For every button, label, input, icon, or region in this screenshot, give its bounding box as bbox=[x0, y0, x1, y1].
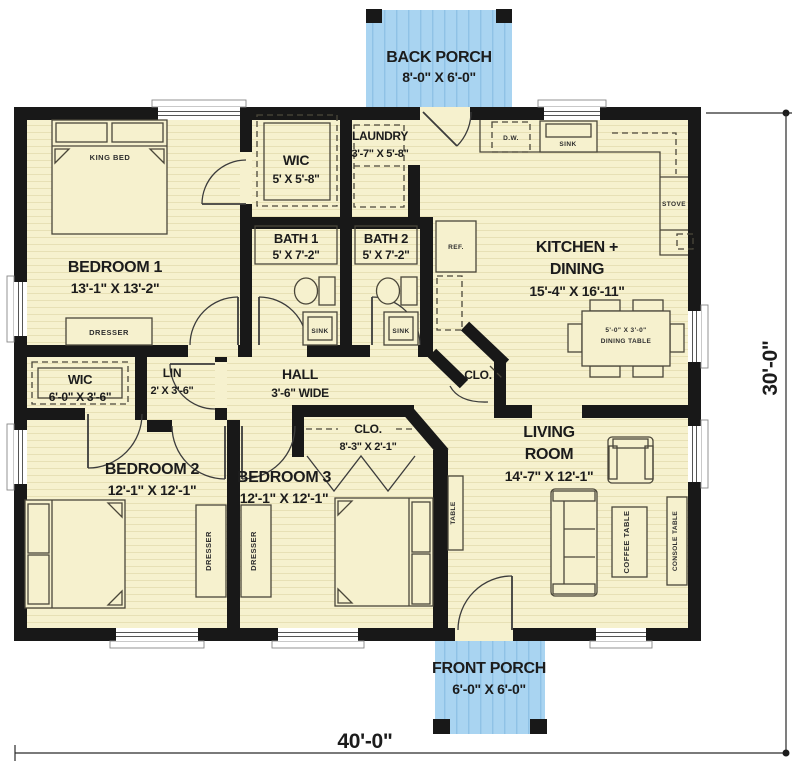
floor-plan-drawing: BACK PORCH 8'-0" X 6'-0" FRONT PORCH 6'-… bbox=[0, 0, 800, 764]
dining-chair bbox=[568, 324, 582, 352]
kitchen-name-1: KITCHEN + bbox=[536, 239, 618, 256]
dining-chair bbox=[590, 300, 620, 311]
hall-closet-name: CLO. bbox=[464, 368, 491, 382]
front-porch-dims: 6'-0" X 6'-0" bbox=[452, 681, 526, 697]
back-porch-dims: 8'-0" X 6'-0" bbox=[402, 69, 476, 85]
porch-post bbox=[433, 719, 450, 734]
kitchen-sink-label: SINK bbox=[559, 141, 576, 148]
laundry-name: LAUNDRY bbox=[352, 129, 408, 143]
toilet-bowl bbox=[295, 278, 318, 304]
dining-chair bbox=[670, 324, 684, 352]
front-porch-label: FRONT PORCH bbox=[432, 660, 546, 677]
back-porch-label: BACK PORCH bbox=[386, 49, 491, 66]
living-name-2: ROOM bbox=[525, 446, 574, 463]
overall-height-dim: 30'-0" bbox=[759, 340, 782, 395]
dining-set: 5'-0" X 3'-0" DINING TABLE bbox=[568, 300, 684, 377]
living-name-1: LIVING bbox=[523, 424, 575, 441]
bedroom2-dims: 12'-1" X 12'-1" bbox=[108, 482, 197, 498]
sofa-table-label: TABLE bbox=[450, 501, 457, 524]
toilet-bowl bbox=[377, 278, 400, 304]
dining-table-label: DINING TABLE bbox=[601, 338, 652, 345]
lin-dims: 2' X 3'-6" bbox=[151, 385, 194, 397]
overall-width-dim: 40'-0" bbox=[337, 730, 392, 753]
dimension-dot bbox=[783, 750, 790, 757]
stove-label: STOVE bbox=[662, 201, 686, 208]
window-bedroom1-left bbox=[7, 276, 27, 342]
window-bedroom3-bottom bbox=[272, 628, 364, 648]
window-living-right bbox=[688, 420, 708, 488]
bath1-sink-label: SINK bbox=[311, 328, 328, 335]
king-bed bbox=[52, 120, 167, 234]
dishwasher-label: D.W. bbox=[503, 135, 519, 142]
dining-chair bbox=[633, 300, 663, 311]
bed bbox=[25, 500, 125, 608]
dresser3-label: DRESSER bbox=[249, 531, 258, 571]
toilet-tank bbox=[319, 277, 335, 305]
wic1-dims: 5' X 5'-8" bbox=[272, 172, 319, 186]
dining-chair bbox=[590, 366, 620, 377]
console-table-label: CONSOLE TABLE bbox=[672, 511, 679, 572]
hall-name: HALL bbox=[282, 366, 319, 382]
dresser1-label: DRESSER bbox=[89, 328, 129, 337]
bath1-name: BATH 1 bbox=[274, 231, 318, 246]
dresser2-label: DRESSER bbox=[204, 531, 213, 571]
bath2-name: BATH 2 bbox=[364, 231, 408, 246]
wic1-name: WIC bbox=[283, 152, 310, 168]
dining-table-dims: 5'-0" X 3'-0" bbox=[605, 327, 646, 334]
back-porch: BACK PORCH 8'-0" X 6'-0" bbox=[366, 9, 512, 107]
bed3-closet-dims: 8'-3" X 2'-1" bbox=[339, 441, 396, 453]
sofa bbox=[551, 489, 597, 596]
hall-dims: 3'-6" WIDE bbox=[271, 386, 329, 400]
porch-post bbox=[366, 9, 382, 23]
wic2-name: WIC bbox=[68, 372, 93, 387]
window-dining-right bbox=[688, 305, 708, 368]
kitchen-name-2: DINING bbox=[550, 261, 604, 278]
bed3-closet-name: CLO. bbox=[354, 422, 381, 436]
coffee-table-label: COFFEE TABLE bbox=[622, 511, 631, 574]
window-living-bottom bbox=[590, 628, 652, 648]
refrigerator-label: REF. bbox=[448, 244, 464, 251]
porch-post bbox=[496, 9, 512, 23]
toilet-tank bbox=[401, 277, 417, 305]
wic2-dims: 6'-0" X 3'-6" bbox=[49, 390, 112, 404]
king-bed-label: KING BED bbox=[90, 153, 131, 162]
window-bedroom2-left bbox=[7, 424, 27, 490]
bedroom1-dims: 13'-1" X 13'-2" bbox=[71, 280, 160, 296]
front-porch: FRONT PORCH 6'-0" X 6'-0" bbox=[432, 641, 547, 734]
kitchen-dims: 15'-4" X 16'-11" bbox=[529, 283, 624, 299]
bedroom3-dims: 12'-1" X 12'-1" bbox=[240, 490, 329, 506]
bedroom2-name: BEDROOM 2 bbox=[105, 461, 200, 478]
window-kitchen-top bbox=[538, 100, 606, 120]
floor-plan-page: BACK PORCH 8'-0" X 6'-0" FRONT PORCH 6'-… bbox=[0, 0, 800, 764]
window-bedroom2-bottom bbox=[110, 628, 204, 648]
bath2-dims: 5' X 7'-2" bbox=[362, 248, 409, 262]
bedroom1-name: BEDROOM 1 bbox=[68, 259, 163, 276]
armchair bbox=[608, 437, 653, 483]
dining-chair bbox=[633, 366, 663, 377]
porch-post bbox=[530, 719, 547, 734]
bath2-sink-label: SINK bbox=[392, 328, 409, 335]
living-dims: 14'-7" X 12'-1" bbox=[505, 468, 594, 484]
bedroom3-name: BEDROOM 3 bbox=[237, 469, 332, 486]
lin-name: LIN bbox=[163, 366, 181, 380]
laundry-dims: 3'-7" X 5'-8" bbox=[351, 148, 408, 160]
bath1-dims: 5' X 7'-2" bbox=[272, 248, 319, 262]
window-bedroom1-top bbox=[152, 100, 246, 120]
